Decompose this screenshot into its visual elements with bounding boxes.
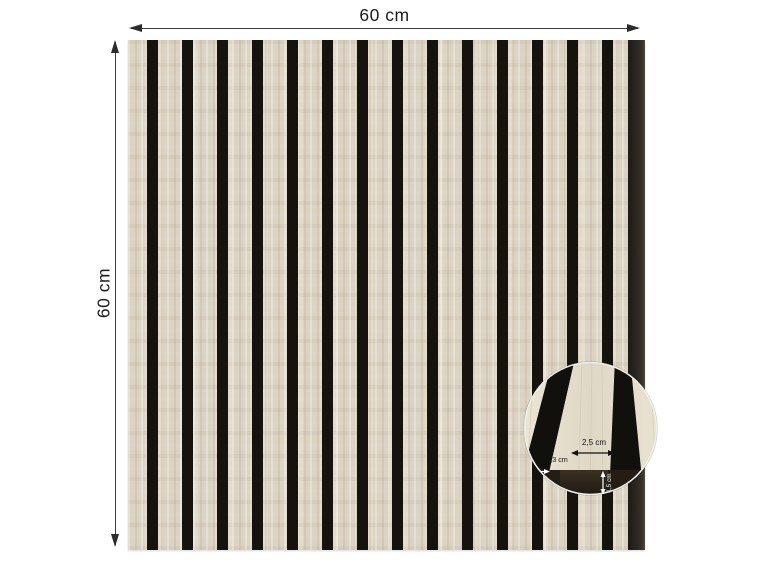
height-dimension-line [115, 42, 116, 545]
width-dimension-line [131, 28, 638, 29]
inset-slat-width-label: 2,5 cm [582, 438, 606, 447]
width-dimension-label: 60 cm [131, 5, 638, 26]
inset-depth-label: 1,5 cm [606, 473, 613, 492]
dimension-arrow-down-icon [111, 534, 119, 547]
inset-gap-width-label: 1,3 cm [546, 455, 568, 464]
dimension-arrow-up-icon [111, 40, 119, 53]
product-dimension-diagram: 60 cm 60 cm [0, 0, 770, 578]
height-dimension-label: 60 cm [94, 268, 115, 318]
detail-magnifier-inset: 2,5 cm 1,3 cm 1,5 cm [520, 358, 661, 499]
